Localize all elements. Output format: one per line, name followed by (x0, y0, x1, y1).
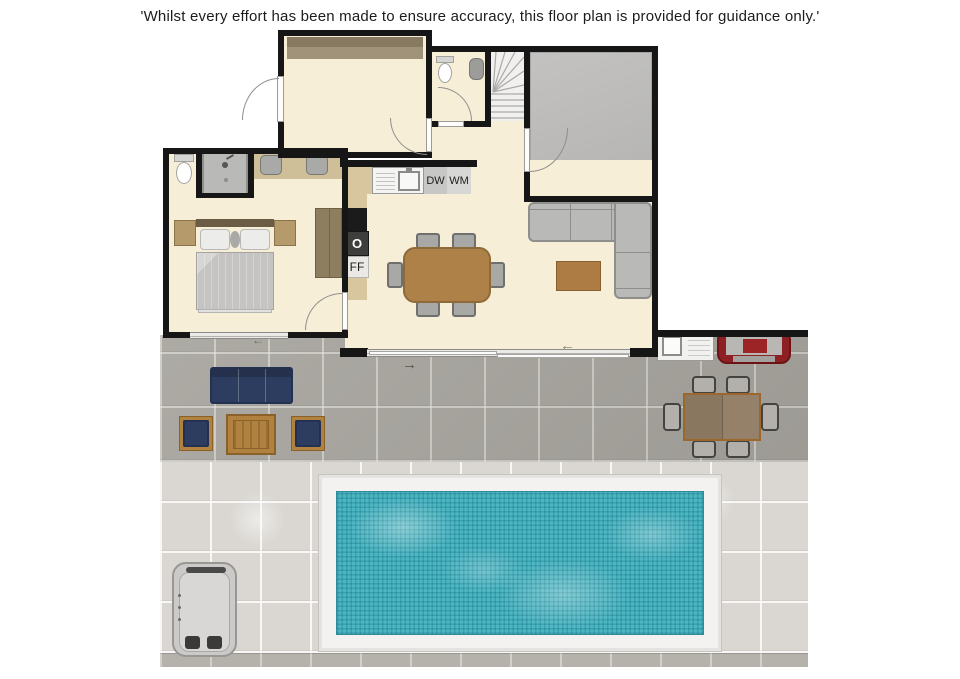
toilet-cistern (174, 154, 194, 162)
wall-segment (630, 348, 658, 357)
cushion-divider (265, 369, 266, 402)
outdoor-dining-chair (726, 376, 750, 394)
shower (202, 152, 248, 196)
bed-foot (198, 309, 272, 313)
kitchen-sink-unit (372, 167, 424, 194)
oven-label: O (352, 236, 362, 251)
fridge-freezer: FF (345, 256, 369, 278)
outdoor-sink (662, 336, 682, 356)
fridge-freezer-label: FF (350, 260, 365, 274)
outdoor-sofa-back (212, 369, 291, 377)
washing-machine: WM (447, 167, 471, 194)
outdoor-dining-chair (726, 440, 750, 458)
toilet-bowl (438, 63, 452, 83)
kitchen-tap (406, 168, 412, 172)
dining-chair (387, 262, 403, 288)
wall-segment (163, 148, 348, 154)
bbq-handle (743, 339, 767, 353)
outdoor-dining-chair (692, 376, 716, 394)
wall-segment (464, 121, 490, 127)
disclaimer-text: 'Whilst every effort has been made to en… (0, 8, 960, 25)
kitchen-sink (398, 171, 420, 191)
double-bed (196, 219, 274, 314)
sliding-panel (497, 354, 629, 358)
dishwasher: DW (424, 167, 447, 194)
hot-tub-seat (207, 636, 222, 649)
dining-chair (452, 301, 476, 317)
hot-tub-jet (178, 594, 181, 597)
hot-tub-jet (178, 606, 181, 609)
floor-plan-page: 'Whilst every effort has been made to en… (0, 0, 960, 679)
hob (347, 208, 367, 231)
coffee-table (556, 261, 601, 291)
wall-segment (248, 148, 254, 198)
wc-door (438, 121, 464, 127)
outdoor-sofa (210, 367, 293, 404)
washing-machine-label: WM (449, 175, 469, 187)
shower-head-icon (222, 162, 228, 168)
hot-tub-jet (178, 618, 181, 621)
master-bedroom-door (342, 292, 348, 330)
pillow (240, 229, 270, 250)
bedroom-sliding-window (190, 332, 288, 339)
outdoor-drawers (688, 337, 710, 356)
cushion-divider (570, 204, 571, 240)
wall-segment (524, 46, 530, 128)
shower-arm (226, 154, 234, 160)
armchair-cushion (295, 420, 321, 447)
kitchen-counter (347, 167, 372, 194)
slide-direction-arrow-icon: → (402, 360, 417, 370)
wardrobe (315, 208, 342, 278)
slide-direction-arrow-icon: ← (252, 335, 264, 345)
slide-direction-arrow-icon: ← (560, 341, 575, 351)
table-slats (233, 420, 269, 449)
outdoor-dining-chair (663, 403, 681, 431)
vanity-sink (260, 155, 282, 175)
door-track-line (190, 336, 288, 337)
hot-tub (172, 562, 237, 657)
wall-segment (278, 30, 284, 76)
wall-segment (196, 148, 202, 198)
wardrobe-door-seam (329, 209, 330, 277)
dining-table (403, 247, 491, 303)
hot-tub-seat (185, 636, 200, 649)
dining-chair (489, 262, 505, 288)
toilet-bowl (176, 162, 192, 184)
toilet-cistern (436, 56, 454, 63)
armchair-cushion (183, 420, 209, 447)
outdoor-dining-chair (761, 403, 779, 431)
wall-segment (196, 193, 254, 198)
oven: O (345, 231, 369, 256)
shower-drain (224, 178, 228, 182)
wall-segment (485, 46, 491, 127)
wall-segment (163, 148, 169, 338)
outdoor-dining-chair (692, 440, 716, 458)
pillow (200, 229, 230, 250)
sofa-chaise (614, 202, 652, 299)
wall-segment (288, 332, 348, 338)
sink-drainer (376, 172, 395, 190)
vanity-sink (306, 155, 328, 175)
door-swing-arc (242, 78, 279, 120)
sliding-panel (369, 351, 497, 355)
wardrobe (287, 37, 423, 59)
wall-segment (342, 148, 348, 292)
swimming-pool (336, 491, 704, 635)
hot-tub-cover (186, 567, 226, 573)
bed-duvet (196, 252, 274, 310)
cushion-divider (616, 252, 650, 253)
wall-segment (278, 30, 432, 36)
bed-cushion (230, 231, 240, 248)
wall-segment (524, 196, 658, 202)
wc-basin (469, 58, 484, 80)
bed-headboard (196, 219, 274, 227)
wall-segment (340, 348, 368, 357)
table-seam (722, 395, 723, 439)
bbq-base (733, 356, 775, 362)
cushion-divider (238, 369, 239, 402)
wall-segment (652, 330, 808, 337)
wall-segment (426, 30, 432, 118)
nightstand (174, 220, 196, 246)
wall-segment (163, 332, 190, 338)
dishwasher-label: DW (426, 175, 444, 187)
outdoor-armchair (291, 416, 325, 451)
wall-segment (652, 46, 658, 202)
outdoor-armchair (179, 416, 213, 451)
outdoor-coffee-table (226, 414, 276, 455)
pool-deck-edge (160, 653, 808, 667)
wall-segment (342, 330, 348, 338)
wall-segment (426, 46, 658, 52)
dining-chair (416, 301, 440, 317)
outdoor-dining-table (683, 393, 761, 441)
nightstand (274, 220, 296, 246)
cushion-divider (611, 204, 612, 240)
wall-segment (340, 160, 477, 167)
sofa-arm-line (616, 288, 650, 289)
staircase (491, 52, 524, 121)
